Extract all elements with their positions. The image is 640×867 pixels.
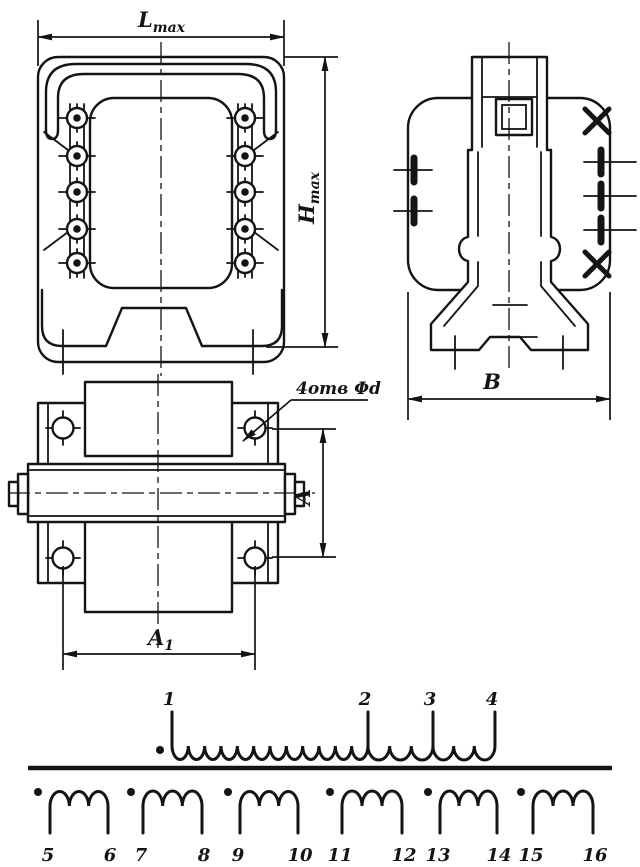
terminal-label: 10 (287, 845, 313, 866)
terminal-label: 9 (232, 845, 245, 866)
terminal-label: 11 (327, 845, 352, 866)
polarity-dot (326, 788, 334, 796)
primary-winding (172, 712, 495, 760)
secondary-winding (240, 791, 298, 833)
drawing-page: { "labels": { "lmax_main": "L", "lmax_su… (0, 0, 640, 867)
terminal-label: 15 (518, 845, 543, 866)
terminal-label: 16 (582, 845, 608, 866)
band-tab-left (9, 482, 18, 506)
terminal-label: 3 (424, 689, 437, 710)
polarity-dot (127, 788, 135, 796)
terminal-label: 7 (135, 845, 148, 866)
front-view (38, 42, 284, 376)
polarity-dot (424, 788, 432, 796)
polarity-dot (156, 746, 164, 754)
terminal-label: 13 (425, 845, 450, 866)
bottom-view (8, 374, 315, 648)
b-label: B (482, 369, 501, 394)
band-cap-left (18, 474, 28, 514)
secondary-winding (533, 791, 593, 833)
secondary-winding (342, 791, 402, 833)
secondary-winding (50, 791, 108, 833)
a1-label: A1 (146, 625, 174, 654)
side-view (394, 42, 636, 372)
terminal-label: 2 (358, 689, 372, 710)
terminal-label: 5 (42, 845, 55, 866)
terminal-label: 4 (486, 689, 499, 710)
terminal-label: 12 (391, 845, 416, 866)
a-label: A (290, 489, 315, 507)
secondary-winding (440, 791, 497, 833)
winding-schematic: 12345678910111213141516 (28, 689, 612, 866)
terminal-label: 1 (163, 689, 176, 710)
secondary-winding (143, 791, 202, 833)
terminal-label: 14 (486, 845, 511, 866)
holes-note-label: 4отв Φd (296, 379, 381, 399)
polarity-dot (517, 788, 525, 796)
terminal-label: 6 (104, 845, 117, 866)
hmax-label: Hmax (294, 171, 323, 225)
polarity-dot (34, 788, 42, 796)
transformer-technical-drawing: Lmax Hmax (0, 0, 640, 867)
polarity-dot (224, 788, 232, 796)
terminal-label: 8 (197, 845, 211, 866)
lmax-label: Lmax (137, 7, 186, 36)
